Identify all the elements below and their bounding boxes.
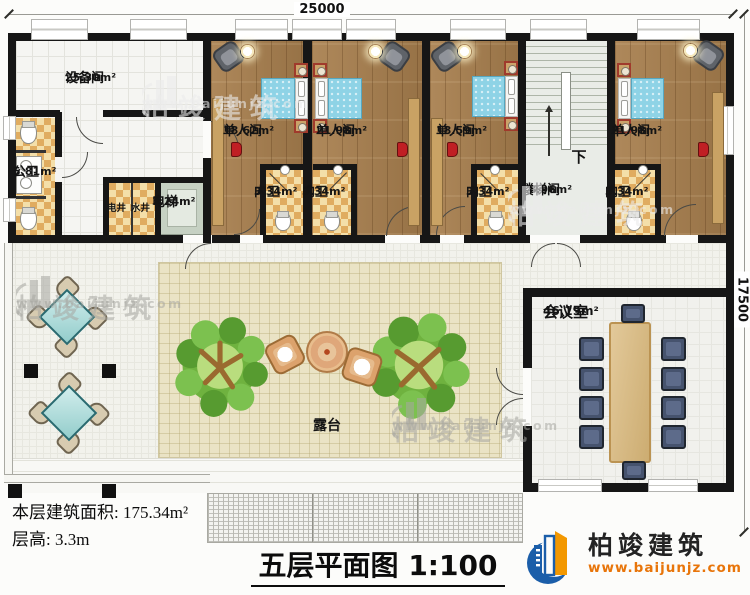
brandname: 柏竣建筑 [588,532,742,561]
bath3-toilet [488,211,504,231]
room-area: 18.59m² [436,125,487,137]
terrace-square-table [39,289,96,346]
decor [536,564,540,566]
bath1-sink [280,165,290,175]
room-name: 水井 [131,204,150,214]
bedroom2-lamp [368,44,383,59]
bath1-toilet [275,211,291,231]
bath4-toilet [626,211,642,231]
wall-segment [523,288,532,368]
room-area: 3.34m² [605,186,648,198]
meeting-chair [579,337,604,361]
room-area: 21.98m² [611,125,662,137]
decor [372,313,470,419]
decor [200,390,227,417]
room-area: 46.19m² [543,305,599,318]
bedroom1-bed-quilt [261,78,295,119]
bath2-toilet [324,211,340,231]
decor [175,317,268,417]
decor [238,336,265,363]
brand-logo-icon [522,523,580,585]
bedroom2-red-marker [397,142,408,157]
wall-segment [523,288,734,297]
decor [243,362,268,387]
wall-segment [655,164,661,235]
decor: 柏竣建筑 www.baijunjz.com [588,532,742,577]
column [102,484,116,498]
pillow [508,79,515,95]
bedroom1-nightstand [294,119,308,133]
wall-segment [422,33,430,243]
wall-segment [313,164,351,170]
bedroom1-lamp [240,44,255,59]
bedroom3-nightstand [504,117,518,131]
wall-segment [263,235,385,243]
bedroom4-lamp [683,43,698,58]
floor-height-text: 层高: 3.3m [12,525,89,550]
stair-stringer [561,72,571,150]
pillow [318,81,325,97]
partition-line [16,196,46,199]
stair-direction-line [548,112,550,156]
bath2-sink [333,165,343,175]
wall-segment [351,164,357,235]
window [346,19,396,40]
wall-segment [523,426,532,486]
meeting-chair [661,367,686,391]
room-area: 3.34m² [302,186,345,198]
room-area: 3.34m² [254,186,297,198]
room-name: 电井 [107,204,126,214]
bedroom4-bed-pillows [618,78,631,119]
meeting-chair [579,425,604,449]
room-area: 25.30m² [65,72,116,84]
label-terrace: 露台 [297,419,357,434]
window [530,19,587,40]
public-wc-toilet [20,121,37,144]
meeting-chair [579,367,604,391]
meeting-chair [621,304,645,323]
bath3-sink [490,165,500,175]
wall-segment [8,235,183,243]
window [450,19,506,40]
decor [536,554,540,556]
decor [438,333,467,362]
public-wc-toilet [20,207,37,230]
window [31,19,88,40]
bedroom1-desk [212,98,224,226]
bedroom4-nightstand [617,63,631,77]
wall-segment [518,33,526,243]
pillow [621,81,628,97]
pillow [298,81,305,97]
bedroom3-bed-quilt [472,76,505,117]
floor-plan-canvas: 设备间25.30m² 单人间18.62m² 单人间21.98m² 单人间18.5… [0,0,750,595]
room-area: 18.62m² [223,125,274,137]
dimension-top-value: 25000 [294,2,350,17]
room-area: 3.24m² [152,196,195,208]
stair-arrow-head [545,105,553,112]
decor [427,384,456,413]
wall-segment [103,110,203,117]
window [538,479,602,492]
window [292,19,342,40]
window [648,479,698,492]
meeting-chair [661,396,686,420]
terrace-table-set [30,374,108,452]
wall-segment [602,483,652,492]
floor-area-text: 本层建筑面积: 175.34m² [12,498,188,523]
wall-segment [203,33,211,121]
bedroom2-bed-pillows [315,78,328,119]
meeting-chair [579,396,604,420]
brand-logo: 柏竣建筑 www.baijunjz.com [522,519,746,589]
wall-segment [55,182,62,235]
partition-line [16,150,46,153]
bedroom4-red-marker [698,142,709,157]
meeting-chair [622,461,646,480]
label-stairs-down: 下 [566,150,592,166]
decor [536,559,540,561]
terrace-round-table [306,331,348,373]
terrace-railing-bottom [4,474,210,483]
terrace-table-set [28,278,106,356]
dimension-line-top [8,14,734,15]
outdoor-steps-hatch [207,493,523,543]
wall-segment [203,158,211,243]
room-area: 3.34m² [466,186,509,198]
bath4-sink [638,165,648,175]
bedroom3-lamp [457,44,472,59]
bedroom4-desk [712,92,724,224]
terrace-square-table [41,385,98,442]
dimension-right-value: 17500 [735,272,750,328]
meeting-table [609,322,651,463]
wall-segment [696,483,734,492]
bedroom3-nightstand [504,61,518,75]
decor: 五层平面图 [259,549,399,582]
wall-segment [55,112,62,157]
meeting-chair [661,425,686,449]
window [637,19,700,40]
pillow [621,100,628,116]
room-area: 18.96m² [521,184,572,196]
decor [555,531,567,575]
decor [175,369,202,396]
bedroom4-bed-quilt [631,78,664,119]
wall-segment [615,164,655,170]
decor [536,549,540,551]
room-area: 21.98m² [316,125,367,137]
tree [168,314,272,418]
decor: 1:100 [408,549,497,582]
bedroom2-nightstand [313,63,327,77]
wall-segment [212,235,240,243]
bedroom1-red-marker [231,142,242,157]
drawing-title: 五层平面图 1:100 [228,544,528,584]
brandurl: www.baijunjz.com [588,560,742,576]
window [3,198,16,222]
pillow [298,100,305,116]
bedroom2-desk [408,98,420,226]
bedroom3-bed-pillows [505,76,518,117]
terrace-railing-left [4,243,13,483]
bedroom2-bed-quilt [328,78,362,119]
bedroom1-nightstand [294,63,308,77]
window [130,19,187,40]
title: 五层平面图 1:100 [251,549,506,587]
bedroom3-red-marker [447,142,458,157]
wall-segment [698,235,734,243]
column [8,484,22,498]
decor [443,361,469,387]
window [235,19,288,40]
bedroom1-bed-pillows [295,78,308,119]
room-area: 5.81m² [13,166,56,178]
wall-segment [580,235,666,243]
pillow [318,100,325,116]
decor [545,536,554,575]
decor [398,390,427,419]
pillow [508,98,515,114]
window [3,116,16,140]
meeting-chair [661,337,686,361]
wall-segment [726,33,734,492]
